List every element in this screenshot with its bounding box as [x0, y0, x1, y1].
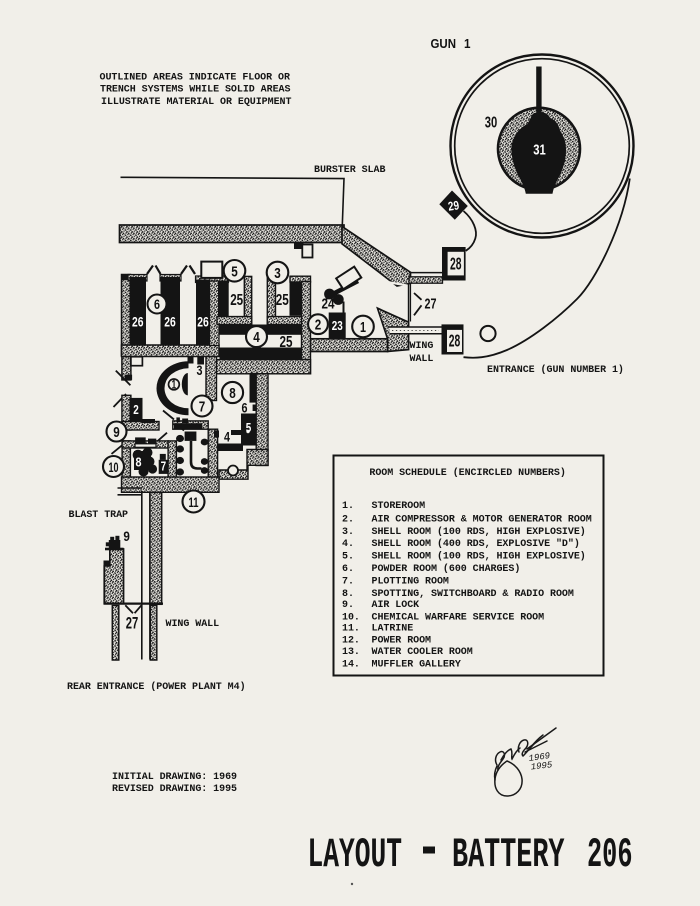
svg-text:12.POWER ROOM: 12.POWER ROOM [342, 635, 431, 646]
svg-text:6: 6 [242, 401, 248, 416]
svg-text:8.SPOTTING, SWITCHBOARD & RADI: 8.SPOTTING, SWITCHBOARD & RADIO ROOM [342, 589, 574, 600]
svg-text:27: 27 [126, 615, 139, 633]
svg-text:27: 27 [425, 295, 437, 312]
svg-text:5: 5 [246, 421, 252, 435]
svg-text:3: 3 [197, 363, 203, 378]
svg-text:10: 10 [109, 459, 119, 475]
svg-text:ROOM SCHEDULE (ENCIRCLED NUMBE: ROOM SCHEDULE (ENCIRCLED NUMBERS) [369, 467, 565, 479]
svg-text:8: 8 [136, 456, 142, 470]
svg-text:28: 28 [449, 330, 461, 350]
svg-text:8: 8 [229, 385, 236, 402]
svg-text:25: 25 [276, 292, 289, 309]
svg-text:BATTERY: BATTERY [452, 831, 565, 879]
svg-text:14.MUFFLER GALLERY: 14.MUFFLER GALLERY [342, 659, 461, 670]
svg-text:26: 26 [197, 314, 209, 330]
svg-text:REVISED DRAWING: 1995: REVISED DRAWING: 1995 [112, 784, 237, 795]
svg-text:2.AIR COMPRESSOR & MOTOR GENER: 2.AIR COMPRESSOR & MOTOR GENERATOR ROOM [342, 514, 592, 525]
svg-text:206: 206 [587, 831, 633, 879]
svg-text:1: 1 [464, 37, 471, 51]
svg-text:GUN: GUN [431, 37, 457, 51]
svg-text:OUTLINED AREAS INDICATE FLOOR: OUTLINED AREAS INDICATE FLOOR OR [100, 73, 290, 84]
svg-text:3.SHELL ROOM (100 RDS, HIGH EX: 3.SHELL ROOM (100 RDS, HIGH EXPLOSIVE) [342, 526, 586, 538]
svg-text:REAR ENTRANCE (POWER PLANT M4): REAR ENTRANCE (POWER PLANT M4) [67, 681, 246, 693]
svg-text:9: 9 [123, 528, 130, 544]
svg-text:3: 3 [274, 265, 281, 282]
svg-text:25: 25 [230, 292, 243, 309]
svg-text:6: 6 [154, 296, 160, 312]
svg-text:4: 4 [224, 429, 230, 444]
svg-text:26: 26 [132, 314, 144, 330]
svg-text:2: 2 [133, 403, 139, 417]
svg-text:INITIAL DRAWING: 1969: INITIAL DRAWING: 1969 [112, 772, 237, 783]
svg-text:7: 7 [199, 399, 206, 416]
svg-text:30: 30 [485, 115, 498, 132]
svg-text:29: 29 [447, 198, 460, 214]
svg-text:ENTRANCE (GUN NUMBER 1): ENTRANCE (GUN NUMBER 1) [487, 364, 624, 376]
svg-text:10.CHEMICAL WARFARE SERVICE RO: 10.CHEMICAL WARFARE SERVICE ROOM [342, 613, 544, 624]
svg-text:26: 26 [164, 314, 176, 330]
svg-text:23: 23 [332, 319, 343, 333]
svg-text:9.AIR LOCK: 9.AIR LOCK [342, 600, 419, 611]
svg-text:LAYOUT: LAYOUT [308, 831, 403, 879]
svg-text:24: 24 [322, 296, 336, 313]
svg-text:31: 31 [533, 142, 546, 159]
svg-text:2: 2 [315, 317, 322, 334]
svg-text:BLAST TRAP: BLAST TRAP [69, 510, 129, 521]
svg-text:5.SHELL ROOM (100 RDS, HIGH EX: 5.SHELL ROOM (100 RDS, HIGH EXPLOSIVE) [342, 551, 586, 563]
svg-text:11.LATRINE: 11.LATRINE [342, 624, 413, 635]
svg-text:TRENCH SYSTEMS WHILE SOLID ARE: TRENCH SYSTEMS WHILE SOLID AREAS [100, 85, 290, 96]
svg-text:9: 9 [113, 424, 120, 441]
svg-text:25: 25 [280, 334, 293, 351]
svg-text:ILLUSTRATE MATERIAL OR EQUIPME: ILLUSTRATE MATERIAL OR EQUIPMENT [101, 97, 291, 108]
svg-text:11: 11 [189, 494, 199, 510]
svg-text:WALL: WALL [410, 354, 434, 365]
svg-text:1: 1 [360, 319, 366, 336]
svg-text:7: 7 [161, 460, 167, 474]
svg-text:1: 1 [172, 380, 177, 392]
svg-text:28: 28 [450, 253, 462, 273]
svg-text:5: 5 [231, 263, 238, 280]
svg-text:WING: WING [410, 341, 434, 352]
svg-text:BURSTER SLAB: BURSTER SLAB [314, 165, 385, 176]
svg-text:WING WALL: WING WALL [166, 619, 220, 630]
svg-text:4: 4 [253, 329, 260, 346]
svg-text:4.SHELL ROOM (400 RDS, EXPLOSI: 4.SHELL ROOM (400 RDS, EXPLOSIVE "D") [342, 538, 580, 550]
